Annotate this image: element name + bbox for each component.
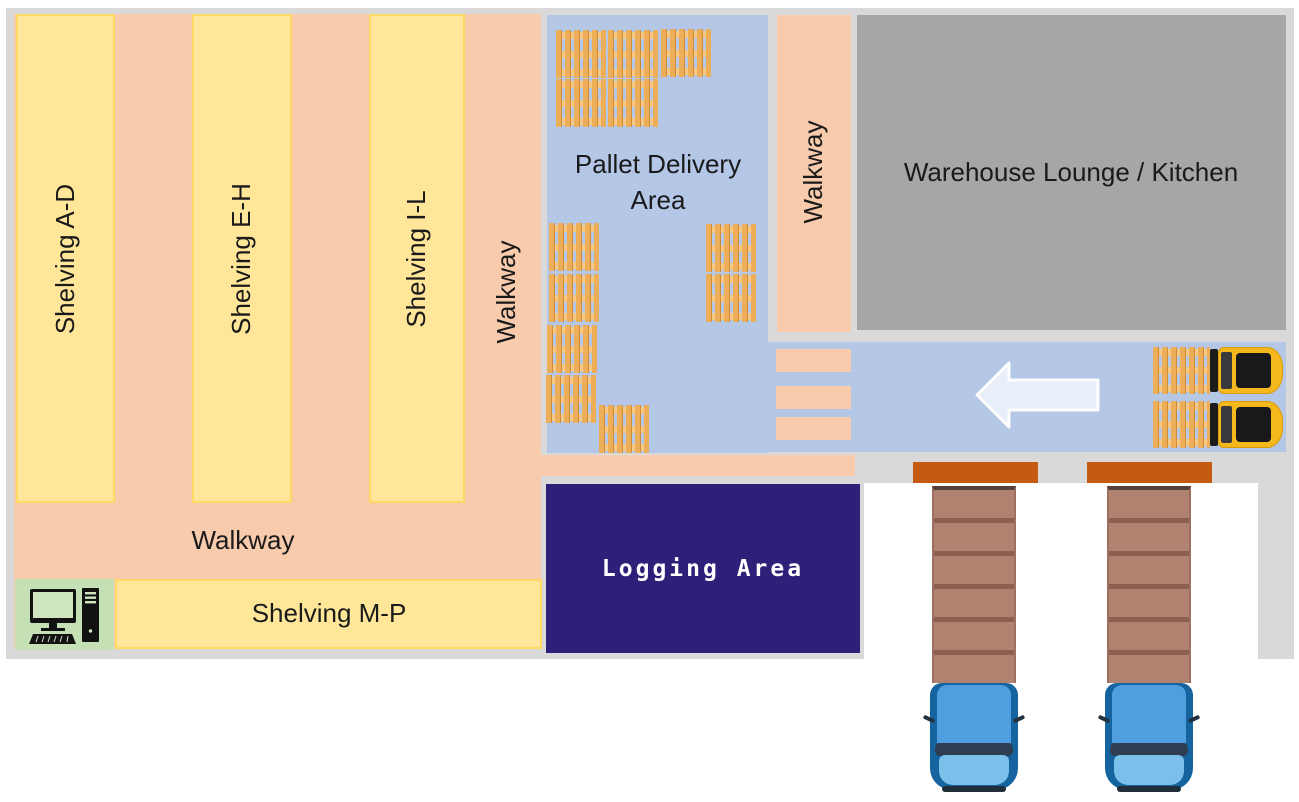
pallet-icon (549, 223, 599, 271)
truck-bumper (1117, 786, 1181, 792)
shelving-mp-label: Shelving M-P (252, 599, 407, 629)
truck-cab-roof (937, 685, 1011, 747)
pallet-icon (608, 30, 658, 78)
shelving-il-label: Shelving I-L (402, 190, 432, 327)
forklift-icon (1153, 401, 1283, 448)
walkway-crossing-bar (776, 349, 851, 372)
walkway-crossing-bar (776, 417, 851, 440)
pallet-icon (547, 325, 597, 373)
direction-arrow-icon (972, 358, 1102, 432)
truck-cab-roof (1112, 685, 1186, 747)
truck-bumper (942, 786, 1006, 792)
shelving-ad-label: Shelving A-D (51, 184, 81, 334)
walkway-right-label: Walkway (799, 120, 829, 223)
pallet-icon (608, 79, 658, 127)
computer-icon (28, 587, 102, 645)
pallet-delivery-label: Pallet Delivery Area (575, 146, 741, 218)
pallet-icon (556, 30, 606, 78)
forklift-body (1218, 401, 1283, 448)
shelving-eh-label: Shelving E-H (227, 183, 257, 335)
pallet-delivery-label-line1: Pallet Delivery (575, 146, 741, 182)
pallet-icon (661, 29, 711, 77)
lounge-label: Warehouse Lounge / Kitchen (904, 158, 1238, 188)
warehouse-floorplan-page: Shelving A-D Shelving E-H Shelving I-L W… (0, 0, 1299, 802)
forklift-engine (1236, 407, 1271, 442)
pallet-icon (706, 274, 756, 322)
pallet-icon (599, 405, 649, 453)
pallet-icon (706, 224, 756, 272)
pallet-icon (1153, 347, 1210, 394)
walkway-crossing-bar (776, 386, 851, 409)
forklift-front (1221, 352, 1232, 389)
truck-trailer (932, 486, 1016, 683)
pallet-delivery-label-line2: Area (575, 182, 741, 218)
truck-icon (1105, 486, 1193, 794)
forklift-mast-icon (1210, 349, 1218, 392)
pallet-icon (1153, 401, 1210, 448)
area-walkway-under-delivery (541, 455, 855, 476)
truck-hood (1114, 755, 1184, 785)
truck-icon (930, 486, 1018, 794)
pallet-icon (546, 375, 596, 423)
truck-cab (930, 683, 1018, 793)
logging-area-label: Logging Area (602, 556, 804, 582)
forklift-icon (1153, 347, 1283, 394)
dock-door-bar (1087, 462, 1212, 483)
forklift-body (1218, 347, 1283, 394)
truck-trailer (1107, 486, 1191, 683)
pallet-icon (549, 274, 599, 322)
truck-hood (939, 755, 1009, 785)
walkway-main-label: Walkway (191, 526, 294, 556)
forklift-front (1221, 406, 1232, 443)
dock-door-bar (913, 462, 1038, 483)
truck-cab (1105, 683, 1193, 793)
walkway-left-label: Walkway (492, 240, 522, 343)
dock-yard-cutout (864, 483, 1258, 659)
forklift-mast-icon (1210, 403, 1218, 446)
forklift-engine (1236, 353, 1271, 388)
pallet-icon (556, 79, 606, 127)
